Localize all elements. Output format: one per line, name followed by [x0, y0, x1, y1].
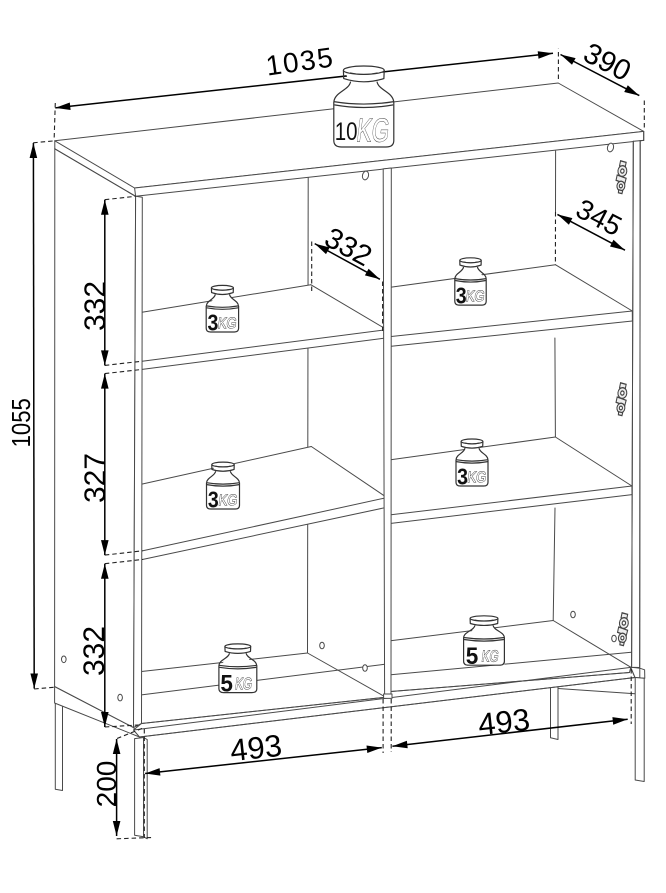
- svg-text:KG: KG: [465, 287, 486, 304]
- svg-text:10: 10: [335, 117, 358, 145]
- svg-text:5: 5: [466, 642, 479, 669]
- svg-text:1055: 1055: [7, 398, 36, 447]
- svg-text:KG: KG: [234, 674, 253, 692]
- svg-text:493: 493: [476, 702, 531, 742]
- svg-text:200: 200: [91, 761, 122, 808]
- svg-text:KG: KG: [481, 647, 500, 665]
- svg-text:332: 332: [79, 281, 112, 331]
- svg-text:332: 332: [78, 626, 111, 676]
- svg-text:3: 3: [208, 487, 219, 513]
- svg-text:KG: KG: [467, 468, 488, 485]
- svg-text:KG: KG: [218, 491, 239, 508]
- svg-text:KG: KG: [355, 113, 392, 150]
- svg-text:493: 493: [228, 728, 283, 768]
- svg-text:327: 327: [79, 453, 112, 503]
- svg-text:5: 5: [220, 670, 233, 697]
- svg-text:3: 3: [456, 283, 467, 309]
- svg-text:KG: KG: [217, 314, 238, 331]
- svg-text:3: 3: [207, 310, 218, 336]
- svg-text:3: 3: [457, 464, 468, 490]
